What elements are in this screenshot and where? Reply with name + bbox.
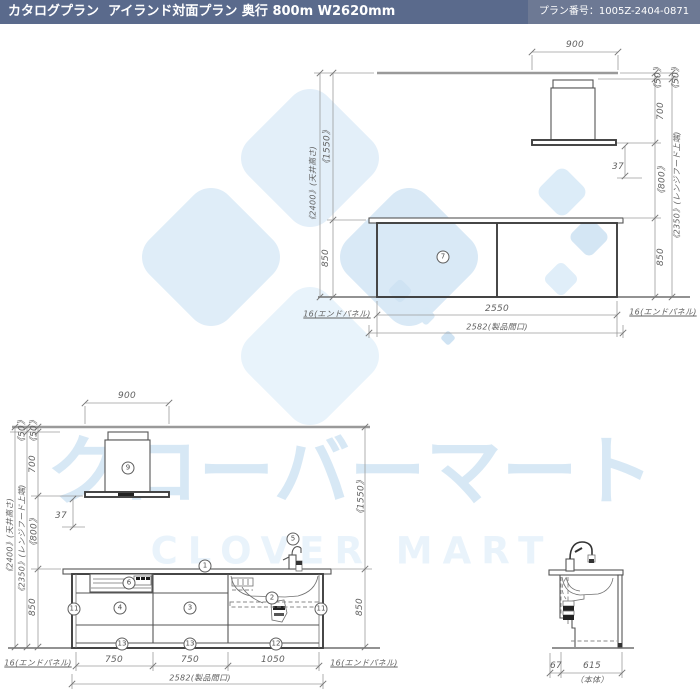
range-hood-duct-cap (553, 80, 593, 88)
range-hood-panel (532, 140, 616, 145)
sink-accessory-box (232, 578, 253, 586)
range-hood-duct (551, 88, 595, 140)
front-view-drawing (8, 400, 380, 689)
rear-view-drawing (314, 49, 690, 338)
plan-number-badge: プラン番号：1005Z-2404-0871 (528, 0, 700, 24)
faucet-body (289, 555, 296, 569)
faucet-base (566, 559, 574, 571)
range-hood-duct (105, 440, 150, 492)
hood-control-strip (118, 493, 134, 496)
countertop-side (549, 570, 623, 575)
drain-trap (563, 601, 574, 606)
range-hood-duct-cap (108, 432, 148, 440)
page-title: カタログプラン アイランド対面プラン 奥行 800m W2620mm (0, 0, 528, 24)
header-bar: カタログプラン アイランド対面プラン 奥行 800m W2620mm プラン番号… (0, 0, 700, 24)
plan-drawing-canvas (0, 0, 700, 700)
drain-trap (271, 600, 287, 622)
end-panel-side (618, 575, 622, 648)
side-view-drawing (547, 542, 634, 678)
